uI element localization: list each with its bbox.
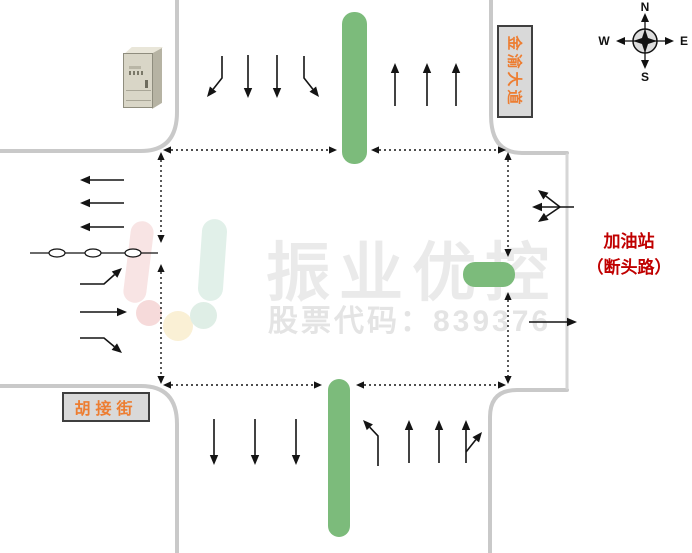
signal-cabinet-front xyxy=(123,53,153,108)
arrow-north-exit-2 xyxy=(423,63,431,106)
arrow-north-approach-right xyxy=(304,56,319,97)
arrow-north-approach-thru-1 xyxy=(244,55,252,98)
arrow-west-exit-2 xyxy=(80,199,124,207)
guide-box-bottom-left xyxy=(163,381,322,388)
arrow-south-approach-thru-1 xyxy=(405,420,413,463)
compass-arrow-west xyxy=(616,37,625,45)
gas-station-note-line1: 加油站 xyxy=(566,229,692,255)
arrow-north-approach-thru-2 xyxy=(273,55,281,98)
road-edge-southeast xyxy=(490,390,567,553)
gas-station-note-line2: （断头路） xyxy=(566,255,692,281)
chain-ellipse xyxy=(85,249,101,257)
compass-label-e: E xyxy=(680,34,688,48)
compass-rose: N S W E xyxy=(598,0,688,84)
compass-arrow-south xyxy=(641,60,649,69)
chain-ellipse xyxy=(125,249,141,257)
arrow-south-approach-right-branch xyxy=(466,432,482,452)
arrow-north-exit-3 xyxy=(452,63,460,106)
compass-arrow-north xyxy=(641,13,649,22)
north-road-label-text: 金渝大道 xyxy=(505,35,526,107)
compass-label-n: N xyxy=(641,0,650,14)
median-east xyxy=(463,262,515,287)
arrow-south-approach-left xyxy=(363,420,378,466)
arrow-west-exit-3 xyxy=(80,223,124,231)
median-south xyxy=(328,379,350,537)
arrow-south-exit-1 xyxy=(210,419,218,465)
arrow-west-exit-1 xyxy=(80,176,124,184)
west-median-chain-line xyxy=(30,249,158,257)
arrow-west-approach-right xyxy=(80,338,122,353)
arrow-south-exit-2 xyxy=(251,419,259,465)
north-road-label: 金渝大道 xyxy=(497,25,533,118)
arrow-west-approach-left xyxy=(80,268,122,284)
arrow-west-approach-thru xyxy=(80,308,127,316)
guide-box-west-lower xyxy=(157,264,164,384)
guide-box-east-upper xyxy=(504,152,511,257)
arrow-south-exit-3 xyxy=(292,419,300,465)
gas-station-note: 加油站 （断头路） xyxy=(566,229,692,282)
arrow-south-approach-thru-3 xyxy=(462,420,470,463)
arrow-north-approach-left xyxy=(207,56,222,97)
compass-label-w: W xyxy=(598,34,610,48)
guide-box-bottom-right xyxy=(356,381,506,388)
arrow-north-exit-1 xyxy=(391,63,399,106)
arrow-east-exit xyxy=(529,318,577,326)
guide-box-top-left xyxy=(163,146,337,153)
guide-box-west-upper xyxy=(157,152,164,243)
guide-box-east-lower xyxy=(504,292,511,384)
west-road-label: 胡接街 xyxy=(62,392,150,422)
intersection-diagram: 振业优控 股票代码：839376 N S W E 金渝大道 xyxy=(0,0,692,553)
compass-arrow-east xyxy=(665,37,674,45)
guide-box-top-right xyxy=(371,146,506,153)
arrow-south-approach-thru-2 xyxy=(435,420,443,463)
west-road-label-text: 胡接街 xyxy=(74,395,137,419)
median-north xyxy=(342,12,367,164)
compass-label-s: S xyxy=(641,70,649,84)
signal-cabinet xyxy=(123,45,169,109)
signal-cabinet-side xyxy=(152,48,162,109)
chain-ellipse xyxy=(49,249,65,257)
